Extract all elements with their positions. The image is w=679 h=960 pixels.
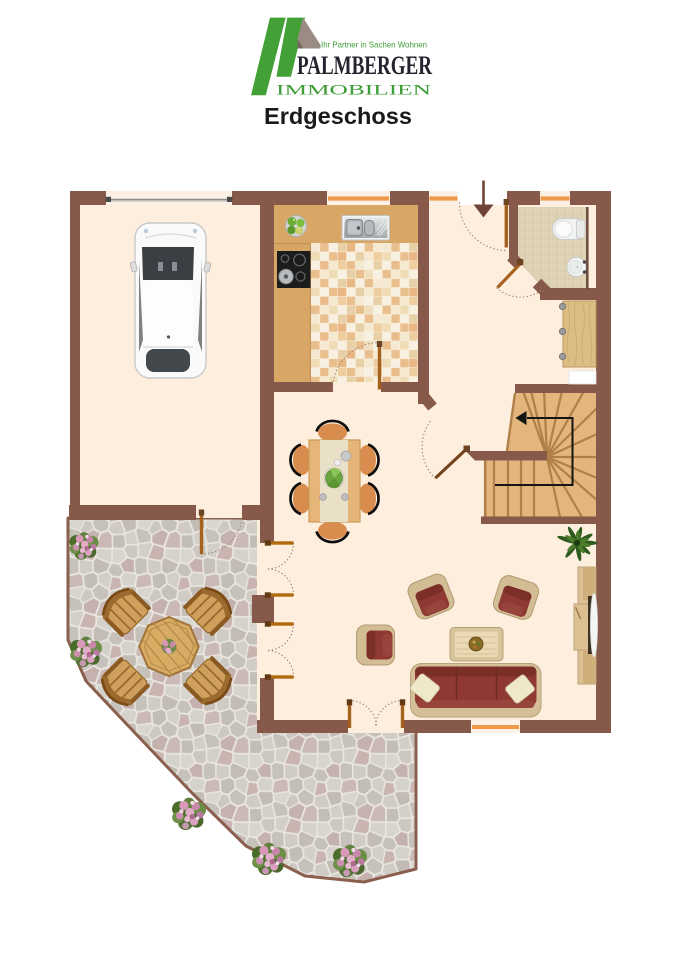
svg-text:Ihr Partner in Sachen Wohnen: Ihr Partner in Sachen Wohnen [321,40,427,49]
svg-text:PALMBERGER: PALMBERGER [297,50,433,80]
svg-text:IMMOBILIEN: IMMOBILIEN [276,83,431,99]
svg-text:Erdgeschoss: Erdgeschoss [264,103,412,129]
